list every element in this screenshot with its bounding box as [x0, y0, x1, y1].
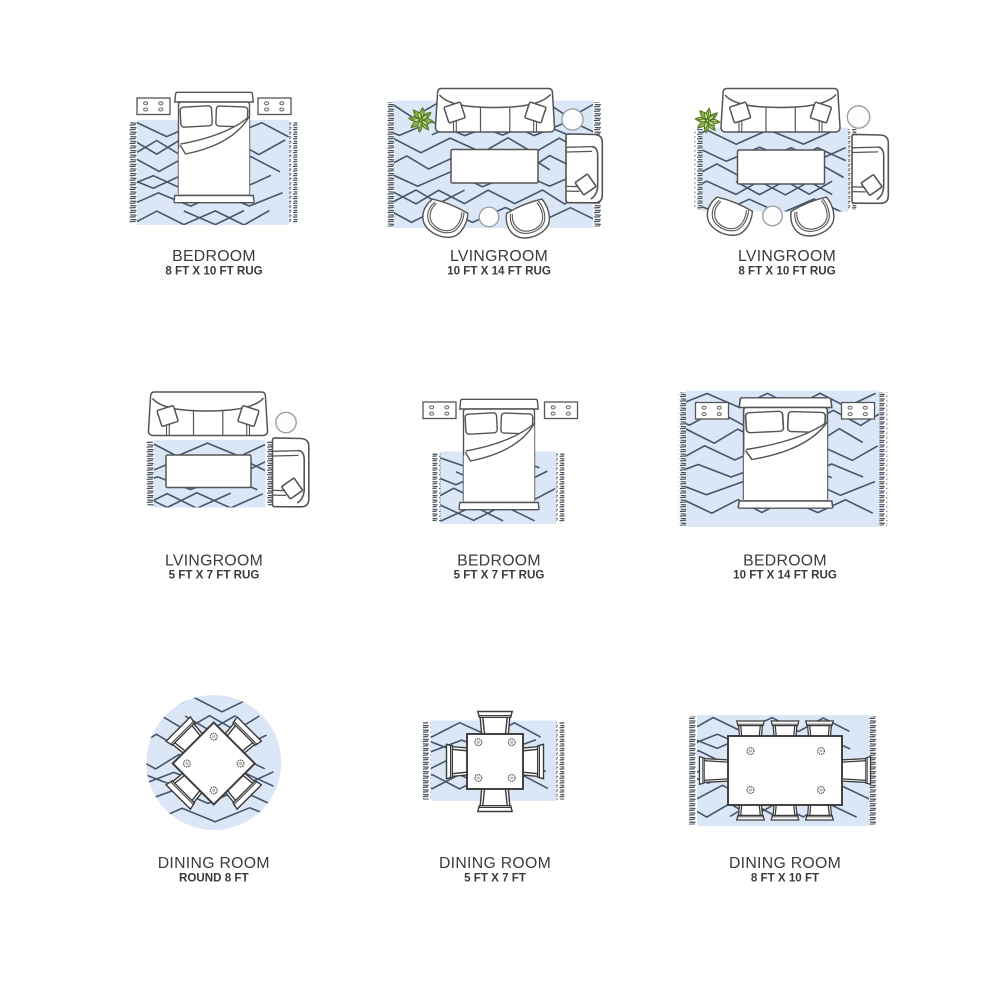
svg-text:BEDROOM: BEDROOM: [172, 248, 256, 265]
svg-text:8 FT X 10 FT RUG: 8 FT X 10 FT RUG: [165, 265, 262, 278]
svg-text:8 FT X 10 FT: 8 FT X 10 FT: [751, 871, 819, 884]
svg-text:DINING ROOM: DINING ROOM: [158, 855, 270, 872]
svg-text:ROUND 8 FT: ROUND 8 FT: [179, 871, 249, 884]
svg-text:LVINGROOM: LVINGROOM: [450, 248, 548, 265]
svg-text:BEDROOM: BEDROOM: [457, 553, 541, 570]
svg-text:5 FT X 7 FT RUG: 5 FT X 7 FT RUG: [169, 569, 260, 582]
svg-text:10 FT X 14 FT RUG: 10 FT X 14 FT RUG: [733, 569, 837, 582]
svg-text:LVINGROOM: LVINGROOM: [165, 553, 263, 570]
svg-text:5 FT X 7 FT RUG: 5 FT X 7 FT RUG: [454, 569, 545, 582]
svg-text:5 FT X 7 FT: 5 FT X 7 FT: [464, 871, 526, 884]
svg-text:BEDROOM: BEDROOM: [743, 553, 827, 570]
svg-text:10 FT X 14 FT RUG: 10 FT X 14 FT RUG: [447, 265, 551, 278]
svg-text:8 FT X 10 FT RUG: 8 FT X 10 FT RUG: [738, 265, 835, 278]
svg-text:DINING ROOM: DINING ROOM: [439, 855, 551, 872]
svg-text:DINING ROOM: DINING ROOM: [729, 855, 841, 872]
svg-text:LVINGROOM: LVINGROOM: [738, 248, 836, 265]
